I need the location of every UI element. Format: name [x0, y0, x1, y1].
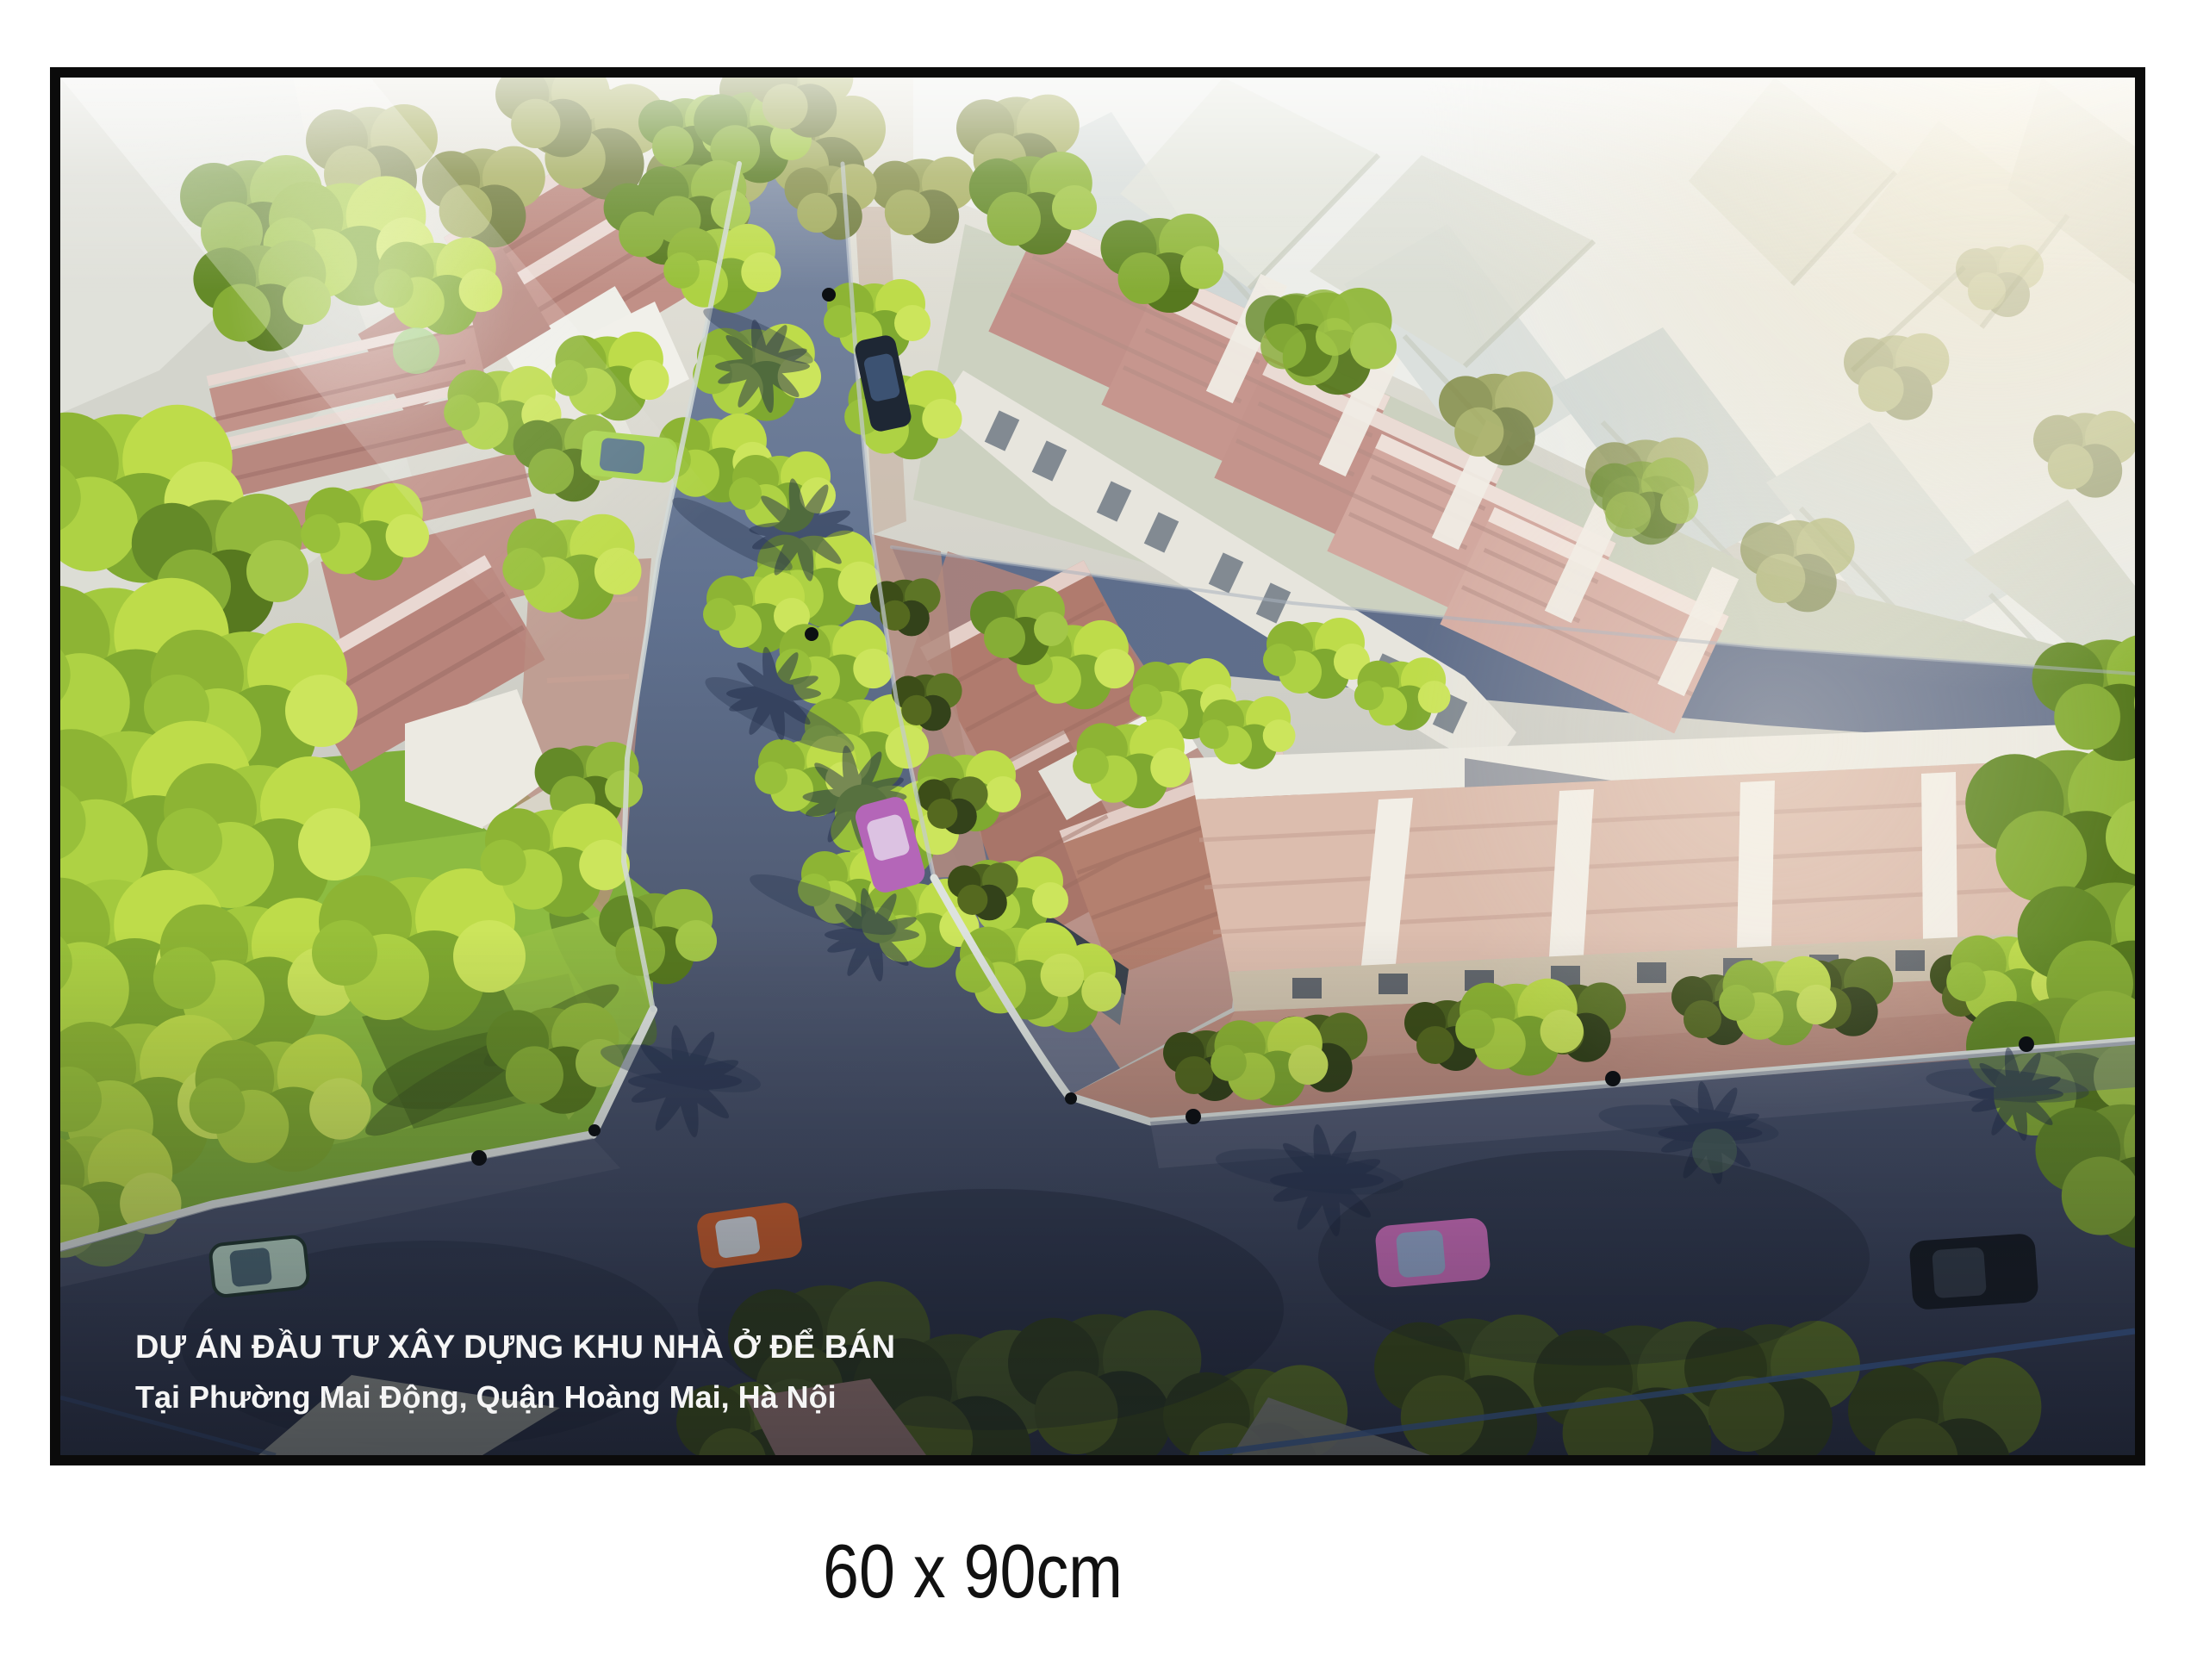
- svg-text:60 x 90cm: 60 x 90cm: [823, 1528, 1123, 1614]
- svg-text:DỰ ÁN ĐẦU TƯ XÂY DỰNG KHU NHÀ: DỰ ÁN ĐẦU TƯ XÂY DỰNG KHU NHÀ Ở ĐỂ BÁN: [135, 1327, 895, 1366]
- svg-text:Tại Phường Mai Động, Quận Hoàn: Tại Phường Mai Động, Quận Hoàng Mai, Hà …: [135, 1379, 837, 1415]
